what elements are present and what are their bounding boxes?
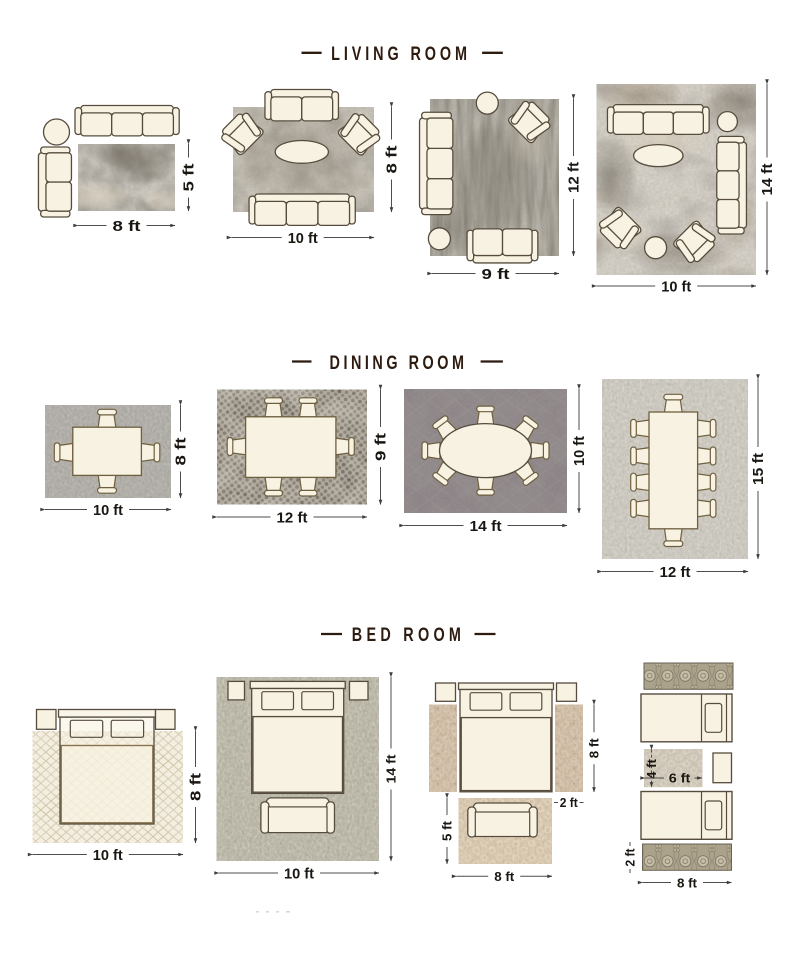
svg-text:9 ft: 9 ft	[373, 433, 390, 461]
svg-text:10 ft: 10 ft	[93, 847, 123, 864]
svg-text:8 ft: 8 ft	[188, 773, 205, 801]
svg-text:8 ft: 8 ft	[494, 869, 515, 884]
svg-text:8 ft: 8 ft	[384, 145, 401, 173]
svg-text:15 ft: 15 ft	[750, 453, 767, 485]
svg-text:4 ft: 4 ft	[644, 758, 659, 779]
svg-text:6 ft: 6 ft	[669, 771, 691, 786]
svg-text:10 ft: 10 ft	[284, 866, 314, 883]
svg-text:14 ft: 14 ft	[759, 163, 776, 195]
svg-text:12 ft: 12 ft	[660, 564, 691, 581]
svg-text:8 ft: 8 ft	[113, 218, 141, 235]
svg-text:2 ft: 2 ft	[560, 795, 579, 810]
svg-text:10 ft: 10 ft	[93, 502, 123, 519]
svg-text:8 ft: 8 ft	[173, 437, 190, 465]
svg-text:12 ft: 12 ft	[277, 510, 308, 527]
svg-text:5 ft: 5 ft	[181, 163, 198, 191]
svg-text:BED ROOM: BED ROOM	[352, 624, 465, 645]
svg-text:2 ft: 2 ft	[622, 848, 637, 867]
svg-text:DINING ROOM: DINING ROOM	[330, 352, 468, 373]
svg-text:8 ft: 8 ft	[677, 875, 698, 890]
svg-text:5 ft: 5 ft	[439, 820, 454, 841]
svg-text:10 ft: 10 ft	[571, 436, 588, 466]
svg-text:10 ft: 10 ft	[288, 230, 318, 247]
svg-text:12 ft: 12 ft	[566, 162, 583, 193]
svg-text:14 ft: 14 ft	[383, 754, 398, 784]
svg-text:8 ft: 8 ft	[586, 738, 601, 759]
svg-text:14 ft: 14 ft	[470, 518, 502, 535]
svg-text:9 ft: 9 ft	[482, 266, 510, 283]
svg-text:10 ft: 10 ft	[661, 279, 691, 296]
svg-text:LIVING ROOM: LIVING ROOM	[331, 43, 471, 64]
